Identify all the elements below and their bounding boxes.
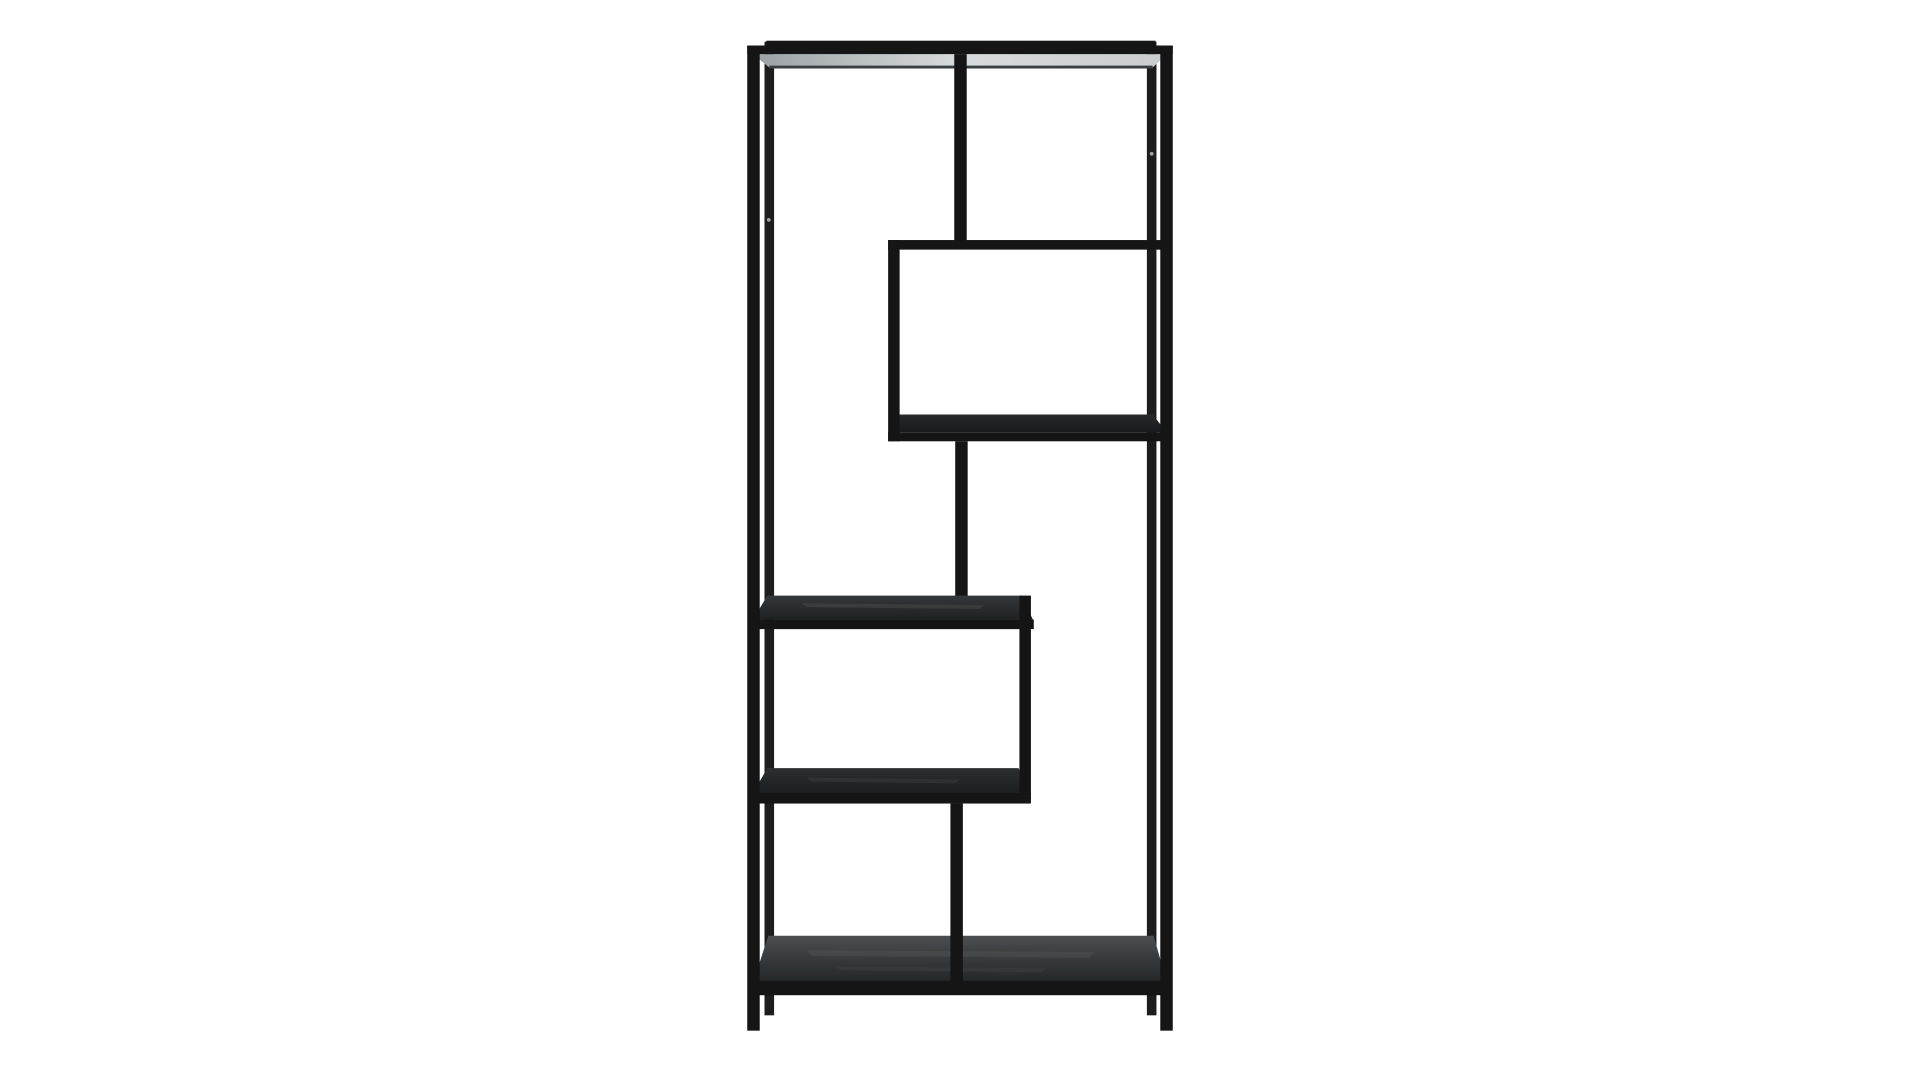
back-left-post bbox=[765, 42, 775, 1016]
lower-box-right-post bbox=[1019, 596, 1031, 799]
shelf4-front-rail bbox=[753, 793, 1031, 804]
screw-dot bbox=[1150, 152, 1154, 156]
lower-divider-bar bbox=[950, 804, 962, 989]
front-right-post bbox=[1160, 46, 1172, 1031]
top-front-rail bbox=[747, 46, 1173, 55]
back-right-post bbox=[1147, 42, 1157, 1016]
upper-box-left-post bbox=[888, 240, 900, 441]
upper-divider-bar bbox=[954, 54, 966, 246]
upper-box-shelf-surface bbox=[888, 414, 1167, 432]
bookshelf-product-image bbox=[40, 16, 1880, 1064]
white-studio-background bbox=[0, 0, 1920, 1080]
screw-dot bbox=[767, 218, 771, 222]
bottom-shelf-front-rail bbox=[753, 981, 1167, 995]
upper-box-shelf-front-rail bbox=[888, 433, 1167, 442]
product-photo bbox=[40, 16, 1880, 1064]
upper-box-top-rail bbox=[888, 240, 1167, 250]
middle-divider-bar bbox=[955, 441, 967, 600]
middle-shelf-front-rail bbox=[753, 620, 1034, 630]
front-left-post bbox=[747, 46, 759, 1031]
